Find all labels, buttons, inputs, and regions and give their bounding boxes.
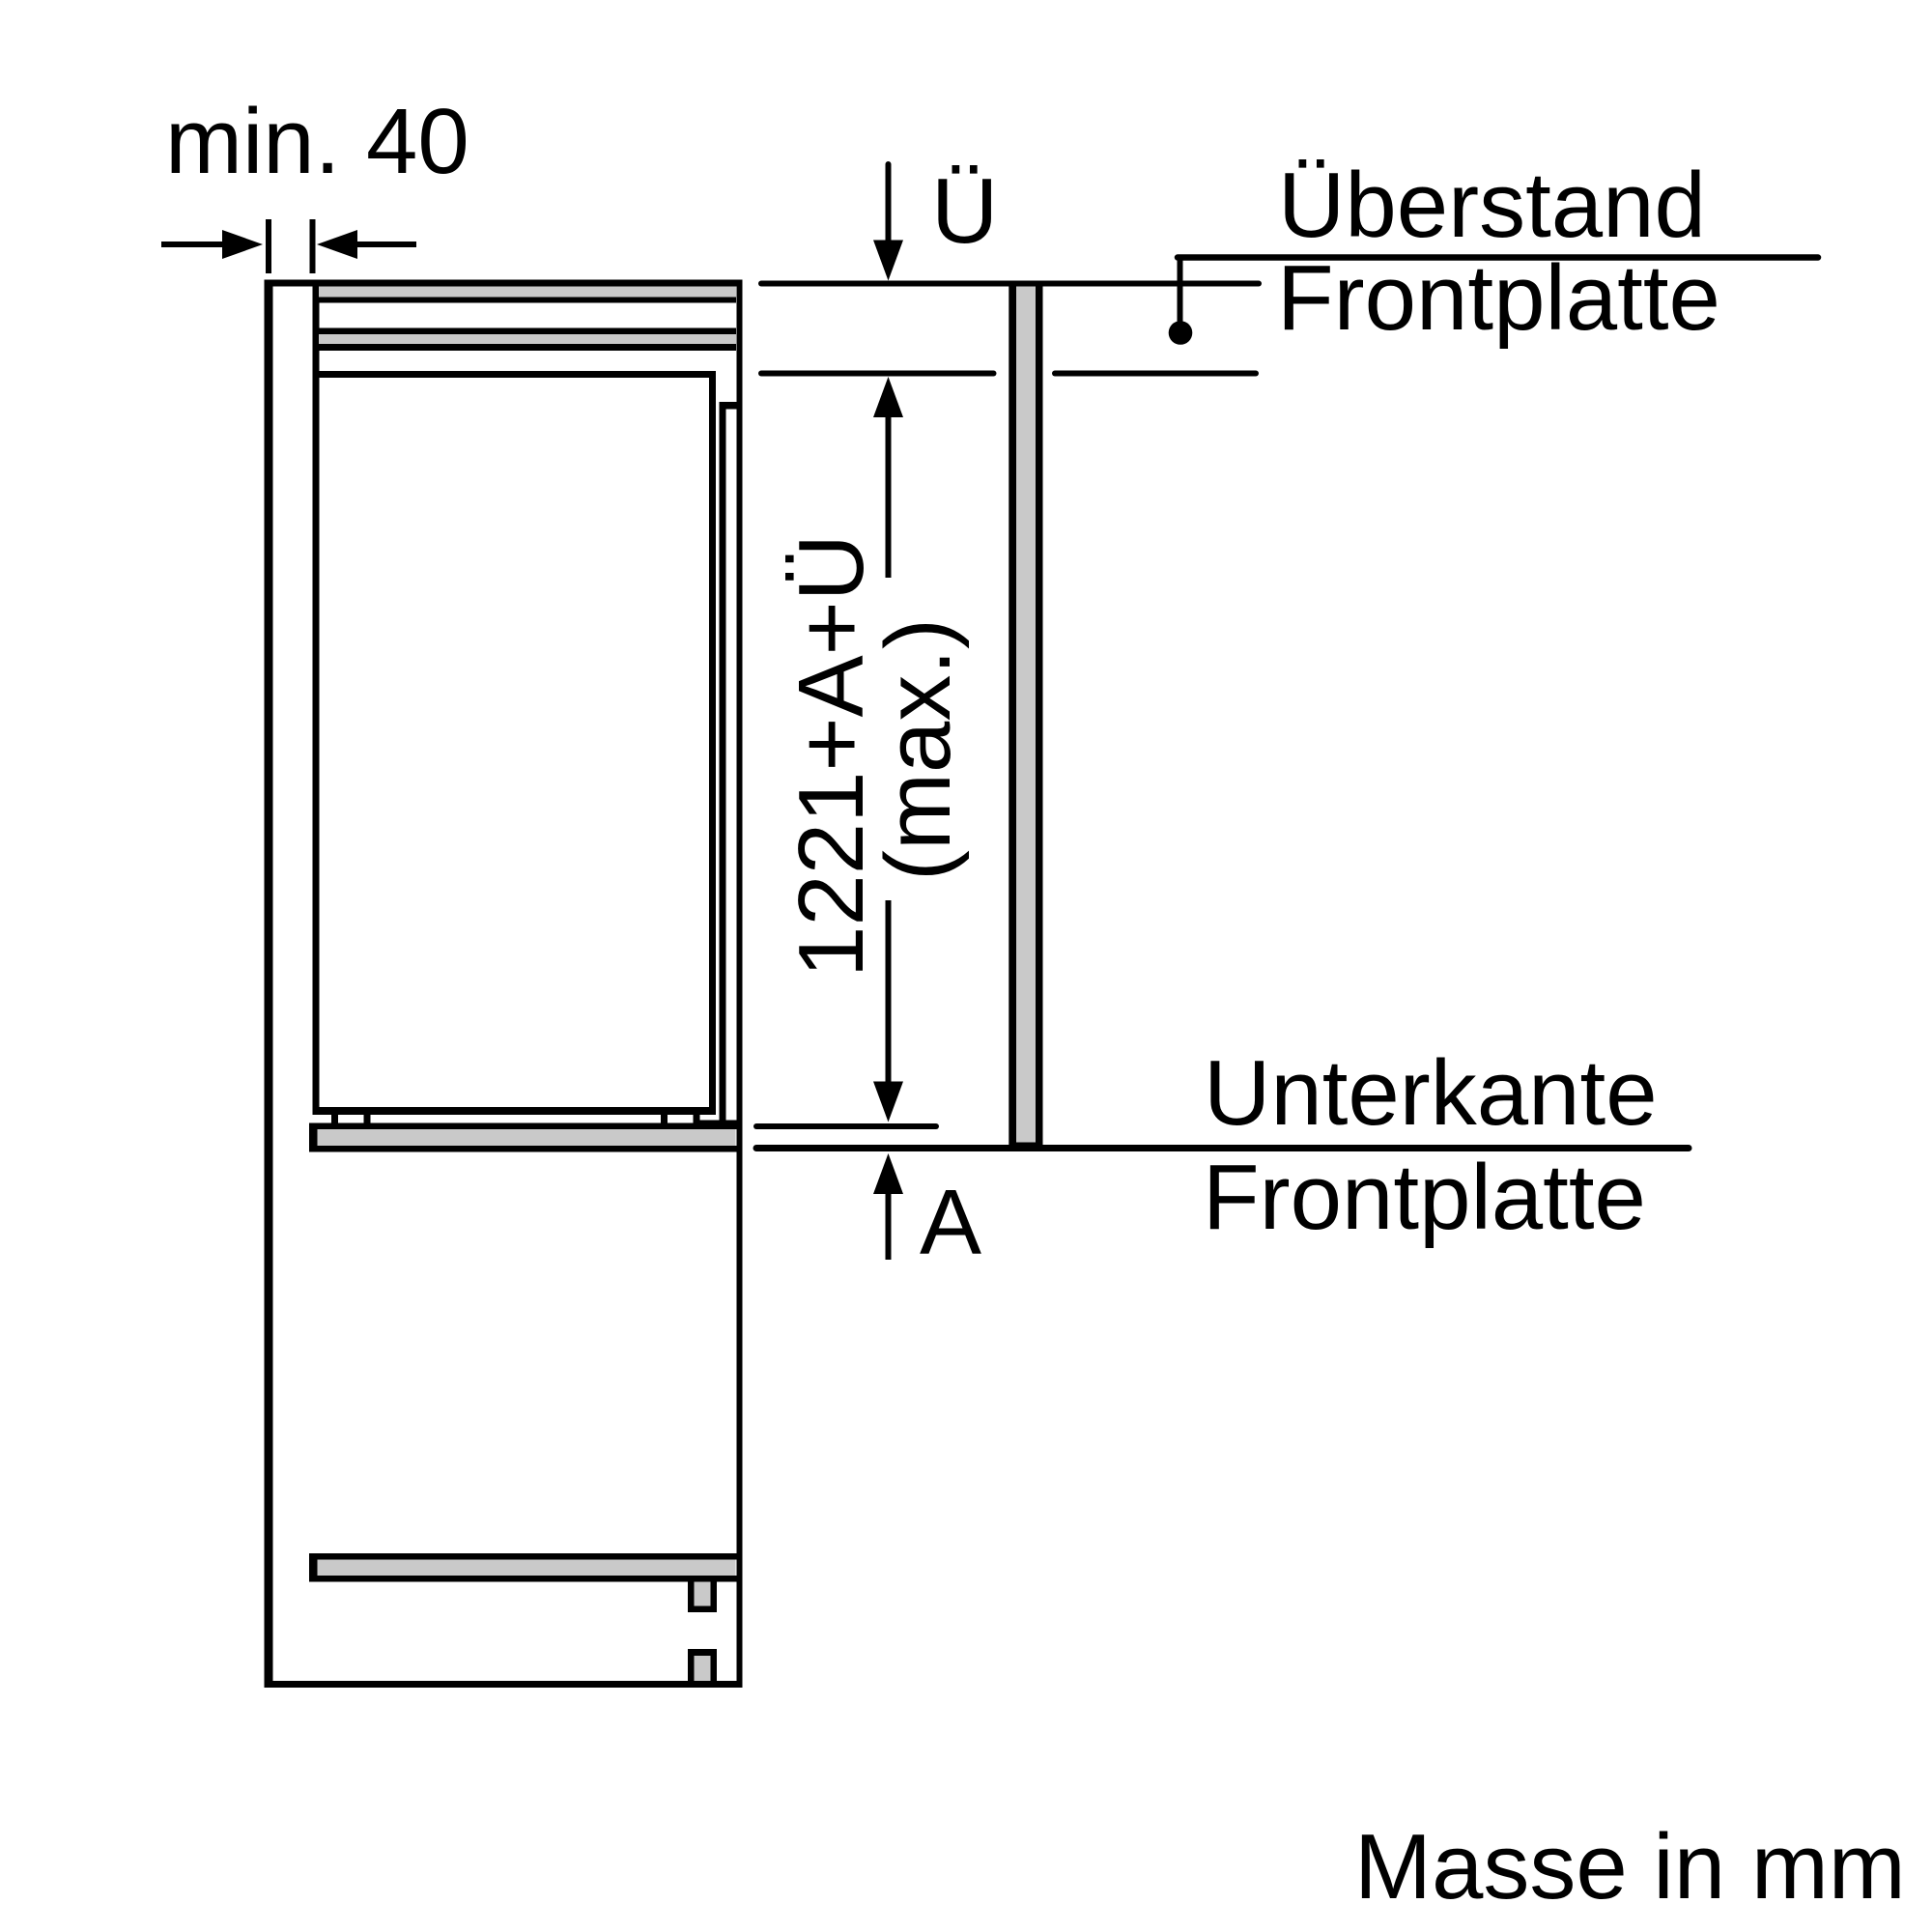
svg-text:Überstand: Überstand: [1278, 154, 1706, 257]
svg-text:min. 40: min. 40: [165, 90, 469, 193]
svg-text:Masse in mm: Masse in mm: [1354, 1815, 1906, 1918]
svg-text:A: A: [920, 1171, 981, 1274]
svg-text:Ü: Ü: [931, 159, 998, 263]
svg-text:(max.): (max.): [867, 618, 970, 881]
svg-text:Unterkante: Unterkante: [1204, 1041, 1658, 1145]
svg-text:Frontplatte: Frontplatte: [1277, 246, 1720, 350]
svg-text:Frontplatte: Frontplatte: [1203, 1146, 1646, 1249]
